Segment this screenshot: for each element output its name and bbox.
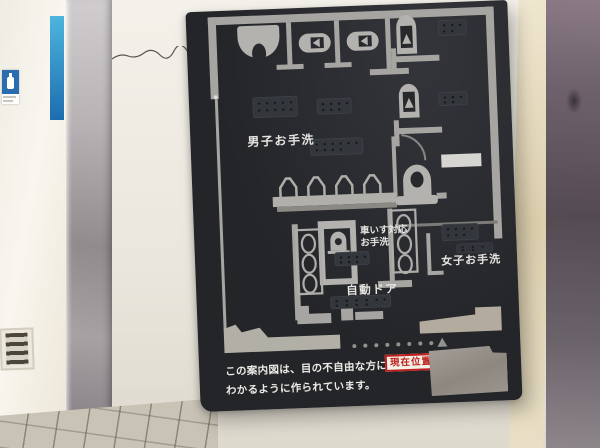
vent-louvers <box>5 333 28 366</box>
bottle-pictogram-icon <box>7 77 14 89</box>
braille-patch <box>457 243 493 253</box>
womens-room-label: 女子お手洗 <box>441 251 501 267</box>
metal-door-frame <box>66 0 112 448</box>
mens-room-label: 男子お手洗 <box>247 131 315 149</box>
wheelchair-room-label-line2: お手洗 <box>360 236 389 249</box>
accessibility-caption: この案内図は、目の不自由な方にも わかるように作られています。 <box>225 356 402 401</box>
door-blemish <box>566 88 582 114</box>
urinal-icon <box>298 33 331 53</box>
worn-white-patch <box>441 153 481 168</box>
tactile-guide-dots <box>352 338 447 351</box>
door-swing-arc <box>401 134 425 161</box>
toilet-icon <box>394 164 438 206</box>
blue-wall-stripe <box>50 16 64 120</box>
pictogram-blue-field <box>2 70 19 94</box>
braille-patch <box>442 223 479 240</box>
toilet-stall-icon <box>396 14 417 54</box>
metal-door-right <box>546 0 600 448</box>
toilet-icon <box>237 25 280 65</box>
urinal-icon <box>346 31 379 51</box>
placard-text-line <box>3 100 13 102</box>
braille-patch <box>335 251 369 265</box>
braille-patch <box>438 20 467 36</box>
wheelchair-room-label-line1: 車いす対応 <box>360 223 408 237</box>
braille-patch <box>317 98 352 114</box>
wall-pictogram-sign <box>2 70 19 104</box>
braille-patch <box>310 138 363 156</box>
placard-text-line <box>3 96 16 98</box>
restroom-map-sign: 男子お手洗 車いす対応 お手洗 女子お手洗 自動ドア この案内図は、目の不自由な… <box>185 0 522 412</box>
worn-grey-patch <box>429 345 509 396</box>
auto-door-label: 自動ドア <box>346 281 398 297</box>
toilet-stall-icon <box>398 83 419 118</box>
braille-patch <box>253 96 298 118</box>
wall-vent <box>0 327 35 370</box>
location-arrow-icon <box>437 338 447 347</box>
sink-counter-icon <box>391 210 417 274</box>
braille-patch <box>439 92 467 106</box>
